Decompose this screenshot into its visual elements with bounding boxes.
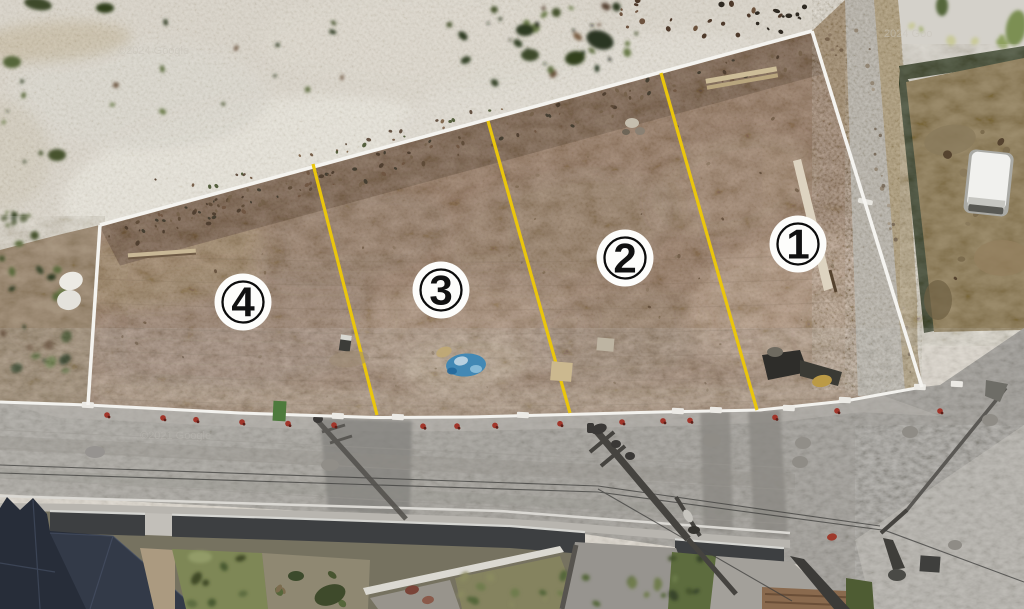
svg-text:©2021 Google: ©2021 Google [140, 430, 211, 442]
svg-text:2024 Goo: 2024 Goo [884, 28, 932, 40]
svg-text:©2024 Google: ©2024 Google [118, 45, 189, 57]
svg-text:4: 4 [231, 279, 255, 326]
svg-text:2: 2 [613, 235, 636, 282]
svg-text:3: 3 [429, 267, 452, 314]
svg-text:1: 1 [786, 221, 809, 268]
